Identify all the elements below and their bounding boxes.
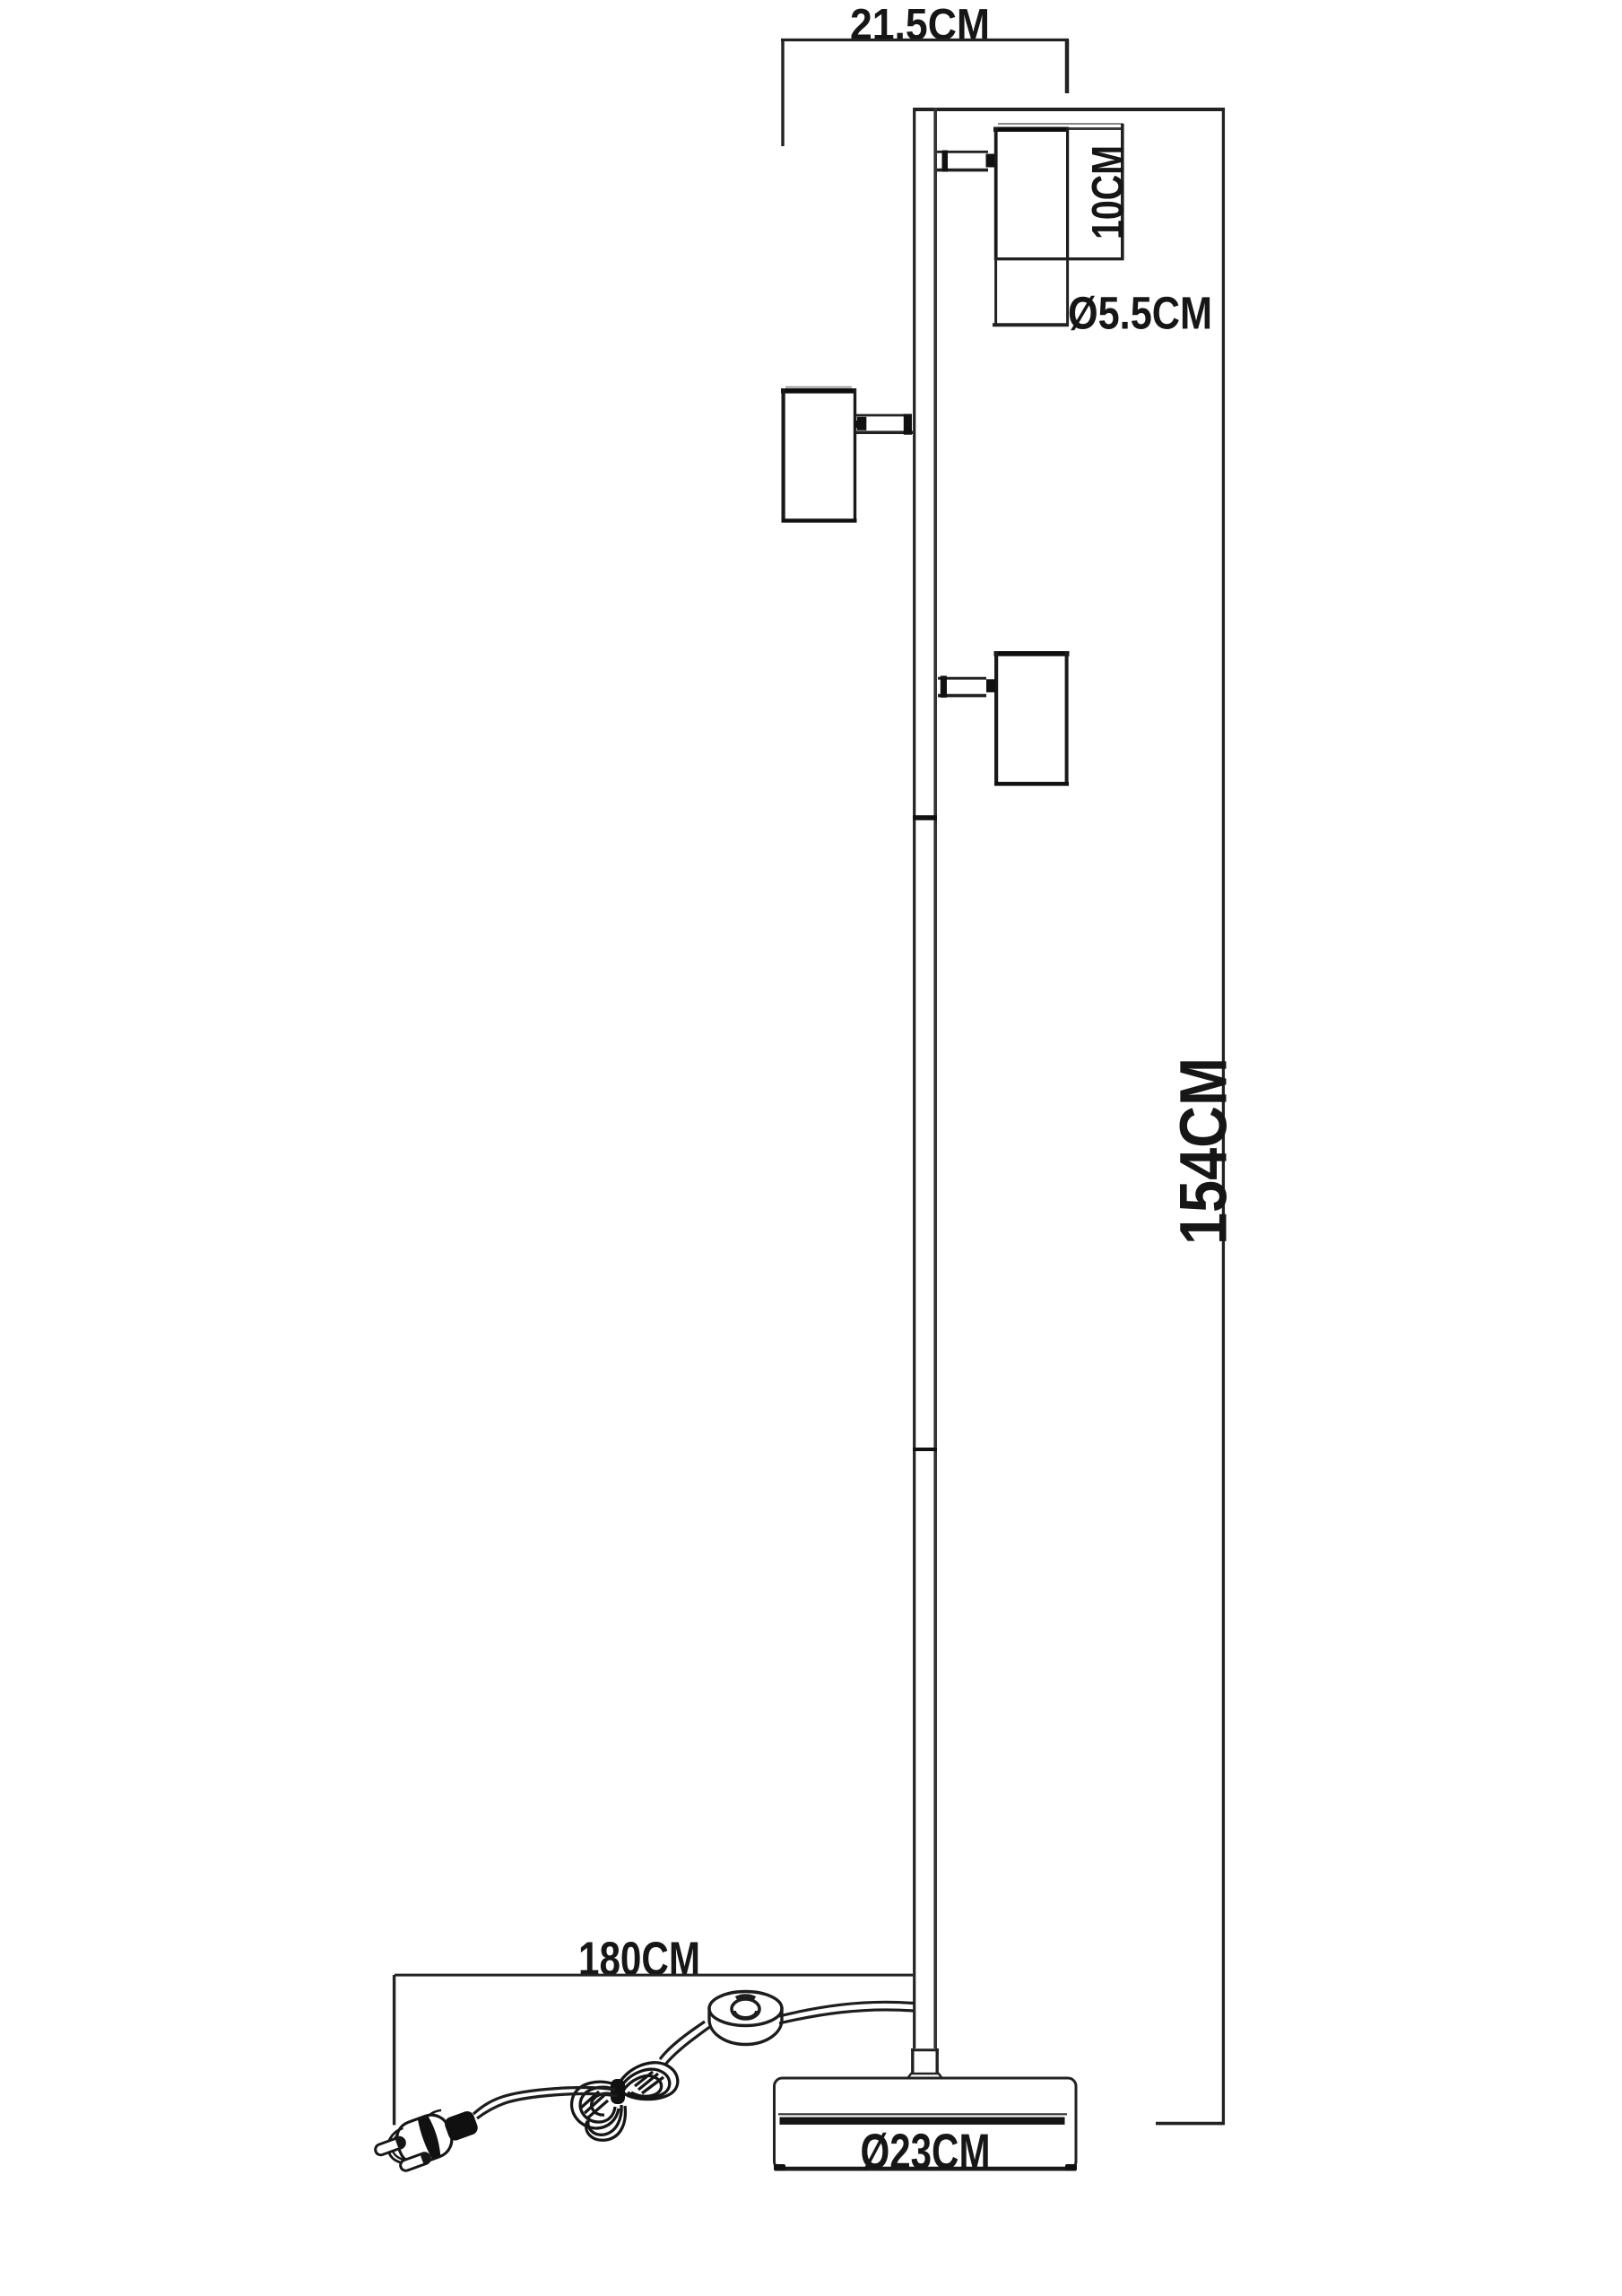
svg-text:Ø5.5CM: Ø5.5CM [1068,288,1212,339]
svg-text:21.5CM: 21.5CM [850,1,990,49]
svg-text:10CM: 10CM [1083,145,1133,239]
svg-text:Ø23CM: Ø23CM [861,2123,991,2179]
svg-text:180CM: 180CM [578,1933,700,1986]
svg-text:154CM: 154CM [1167,1057,1241,1245]
